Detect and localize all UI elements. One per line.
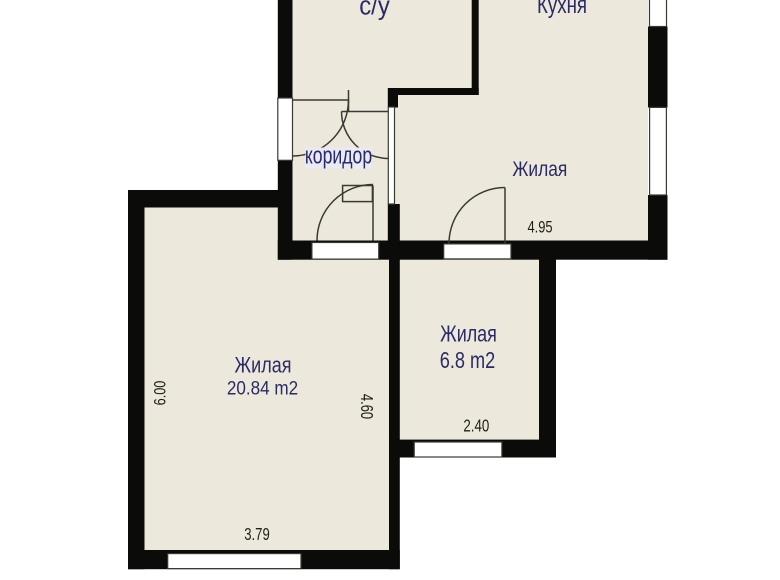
svg-text:Жилая: Жилая: [235, 354, 292, 378]
svg-text:Кухня: Кухня: [537, 0, 587, 19]
svg-text:6.00: 6.00: [152, 381, 170, 406]
svg-text:с/у: с/у: [359, 0, 390, 21]
svg-text:4.95: 4.95: [527, 218, 552, 237]
svg-text:Жилая: Жилая: [512, 157, 567, 181]
svg-text:3.79: 3.79: [244, 525, 270, 544]
svg-text:Жилая: Жилая: [440, 321, 497, 347]
svg-text:20.84 m2: 20.84 m2: [227, 378, 298, 399]
svg-text:4.60: 4.60: [356, 394, 376, 419]
svg-text:2.40: 2.40: [463, 417, 489, 436]
svg-text:коридор: коридор: [305, 142, 372, 170]
svg-text:6.8 m2: 6.8 m2: [440, 348, 496, 374]
